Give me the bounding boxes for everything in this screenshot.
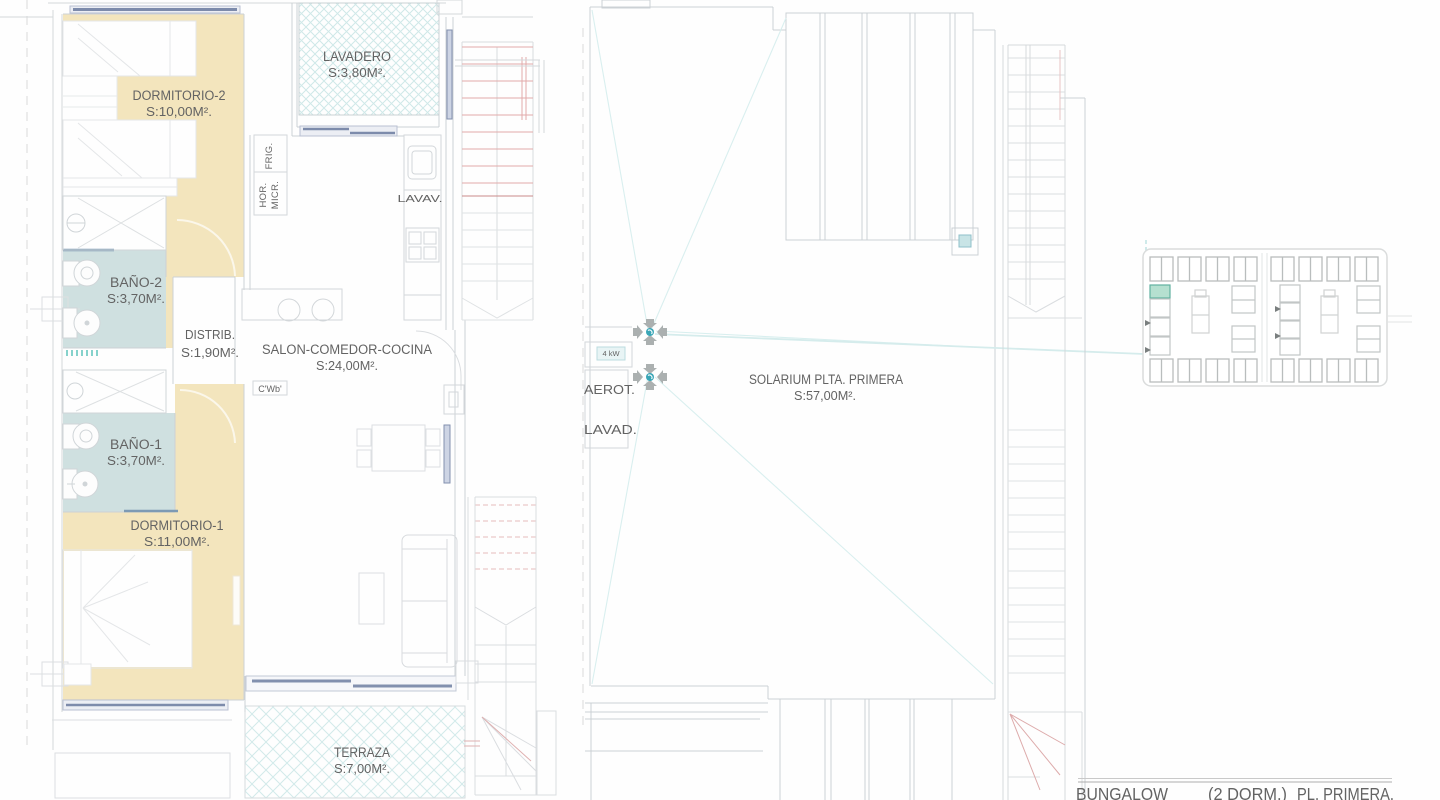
svg-text:TERRAZA: TERRAZA (334, 745, 390, 760)
svg-text:S:10,00M².: S:10,00M². (146, 104, 212, 119)
svg-text:S:57,00M².: S:57,00M². (794, 388, 856, 403)
svg-text:PL. PRIMERA.: PL. PRIMERA. (1297, 784, 1394, 800)
svg-text:HOR.: HOR. (258, 183, 269, 208)
svg-text:BAÑO-1: BAÑO-1 (110, 437, 162, 452)
svg-text:AEROT.: AEROT. (584, 382, 635, 397)
svg-text:(2 DORM.): (2 DORM.) (1208, 784, 1287, 800)
svg-text:FRIG.: FRIG. (264, 143, 275, 170)
svg-text:SOLARIUM PLTA. PRIMERA: SOLARIUM PLTA. PRIMERA (749, 372, 903, 387)
svg-text:S:3,80M².: S:3,80M². (328, 65, 386, 80)
svg-text:S:3,70M².: S:3,70M². (107, 291, 165, 306)
svg-text:S:1,90M².: S:1,90M². (181, 345, 239, 360)
svg-text:BUNGALOW: BUNGALOW (1076, 784, 1168, 800)
svg-text:C'Wb': C'Wb' (258, 384, 282, 394)
svg-text:LAVADERO: LAVADERO (323, 49, 391, 64)
svg-text:S:7,00M².: S:7,00M². (334, 761, 390, 776)
svg-text:DISTRIB.: DISTRIB. (185, 327, 235, 342)
svg-text:DORMITORIO-2: DORMITORIO-2 (133, 88, 226, 103)
svg-text:SALON-COMEDOR-COCINA: SALON-COMEDOR-COCINA (262, 342, 432, 357)
svg-text:S:3,70M².: S:3,70M². (107, 453, 165, 468)
svg-text:4 kW: 4 kW (602, 349, 620, 358)
svg-text:LAVAD.: LAVAD. (584, 422, 637, 437)
svg-text:S:24,00M².: S:24,00M². (316, 358, 378, 373)
svg-text:DORMITORIO-1: DORMITORIO-1 (131, 518, 224, 533)
svg-text:MICR.: MICR. (270, 181, 281, 209)
svg-text:S:11,00M².: S:11,00M². (144, 534, 210, 549)
svg-text:BAÑO-2: BAÑO-2 (110, 275, 162, 290)
svg-text:LAVAV.: LAVAV. (398, 193, 443, 205)
